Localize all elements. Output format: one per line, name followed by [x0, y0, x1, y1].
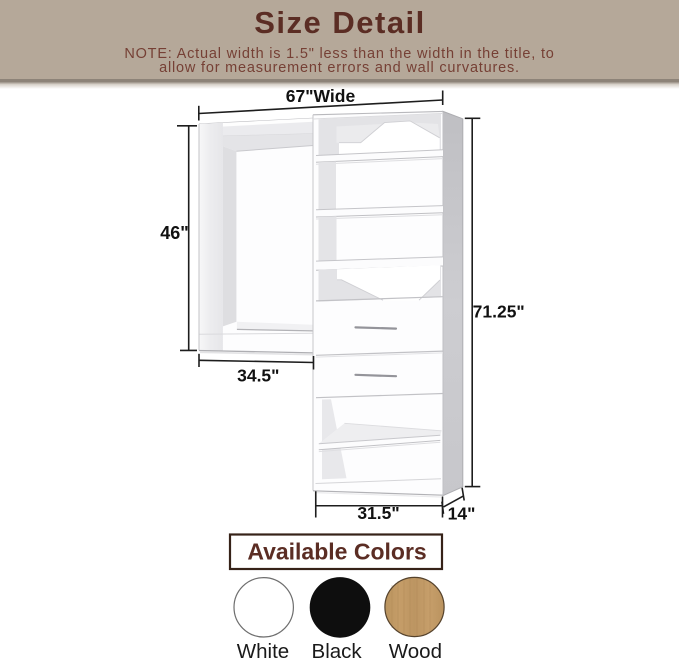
svg-text:Available Colors: Available Colors	[247, 539, 426, 565]
svg-text:34.5": 34.5"	[237, 366, 279, 386]
svg-text:White: White	[237, 640, 289, 661]
svg-text:allow for measurement errors a: allow for measurement errors and wall cu…	[159, 60, 520, 76]
svg-text:Size Detail: Size Detail	[254, 5, 426, 40]
svg-text:67"Wide: 67"Wide	[286, 86, 356, 106]
svg-text:46": 46"	[160, 223, 189, 243]
svg-text:14": 14"	[448, 504, 476, 524]
svg-text:Black: Black	[312, 640, 363, 661]
svg-text:Wood: Wood	[389, 640, 442, 661]
svg-text:71.25": 71.25"	[473, 302, 525, 322]
svg-text:31.5": 31.5"	[357, 503, 399, 523]
